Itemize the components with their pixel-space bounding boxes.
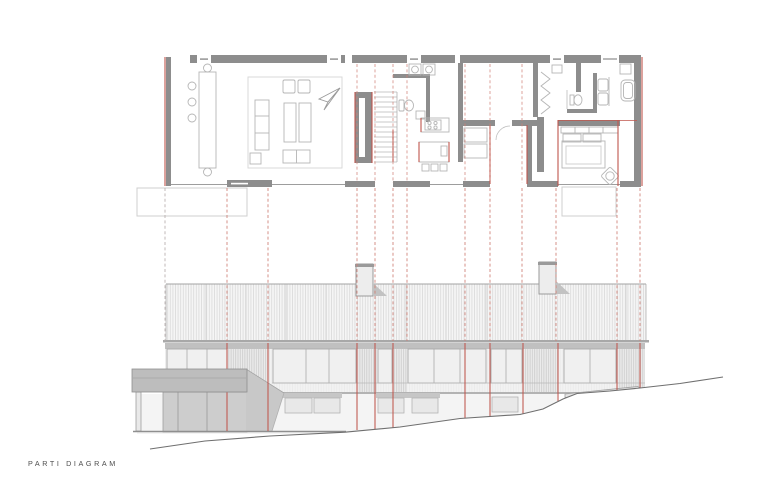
powder-room <box>393 74 430 122</box>
hanging-clothes-zigzag <box>541 72 550 114</box>
bedroom-closet <box>561 127 618 133</box>
chaise <box>284 103 296 142</box>
sliding-door <box>227 180 272 187</box>
sheet-title: PARTI DIAGRAM <box>28 459 118 468</box>
laundry <box>409 64 435 75</box>
north-arrow-icon <box>319 88 340 110</box>
eave-fascia <box>163 340 649 343</box>
vanity-sink <box>598 93 608 105</box>
carport-canopy <box>132 369 247 392</box>
kitchen <box>419 118 449 171</box>
round-chair <box>601 167 619 185</box>
stairs <box>355 92 397 163</box>
parti-diagram-sheet: PARTI DIAGRAM <box>0 0 780 488</box>
closet-shelf <box>464 128 487 142</box>
dining-area <box>188 64 216 176</box>
toilet <box>570 95 574 105</box>
kitchen-island <box>419 142 449 162</box>
stool <box>431 164 438 171</box>
floor-plan <box>137 55 642 216</box>
armchair <box>298 80 310 93</box>
wardrobe <box>533 63 562 117</box>
stool <box>440 164 447 171</box>
toilet <box>399 100 404 111</box>
living-room <box>248 77 342 168</box>
sofa <box>255 100 269 150</box>
vanity-sink <box>598 79 608 91</box>
chaise <box>299 103 311 142</box>
entry-hall <box>458 63 538 183</box>
island-sink <box>441 146 447 156</box>
bedroom-terrace-outline <box>562 187 616 216</box>
dining-table <box>199 72 216 168</box>
bathroom <box>567 63 635 113</box>
armchair <box>283 80 295 93</box>
bedroom <box>537 117 620 185</box>
closet-shelf <box>464 144 487 158</box>
stool <box>422 164 429 171</box>
roof <box>166 284 646 341</box>
entry-door-swing <box>496 126 510 140</box>
ottoman <box>250 153 261 164</box>
left-deck-outline <box>137 188 247 216</box>
drawing-canvas: PARTI DIAGRAM <box>0 0 780 488</box>
